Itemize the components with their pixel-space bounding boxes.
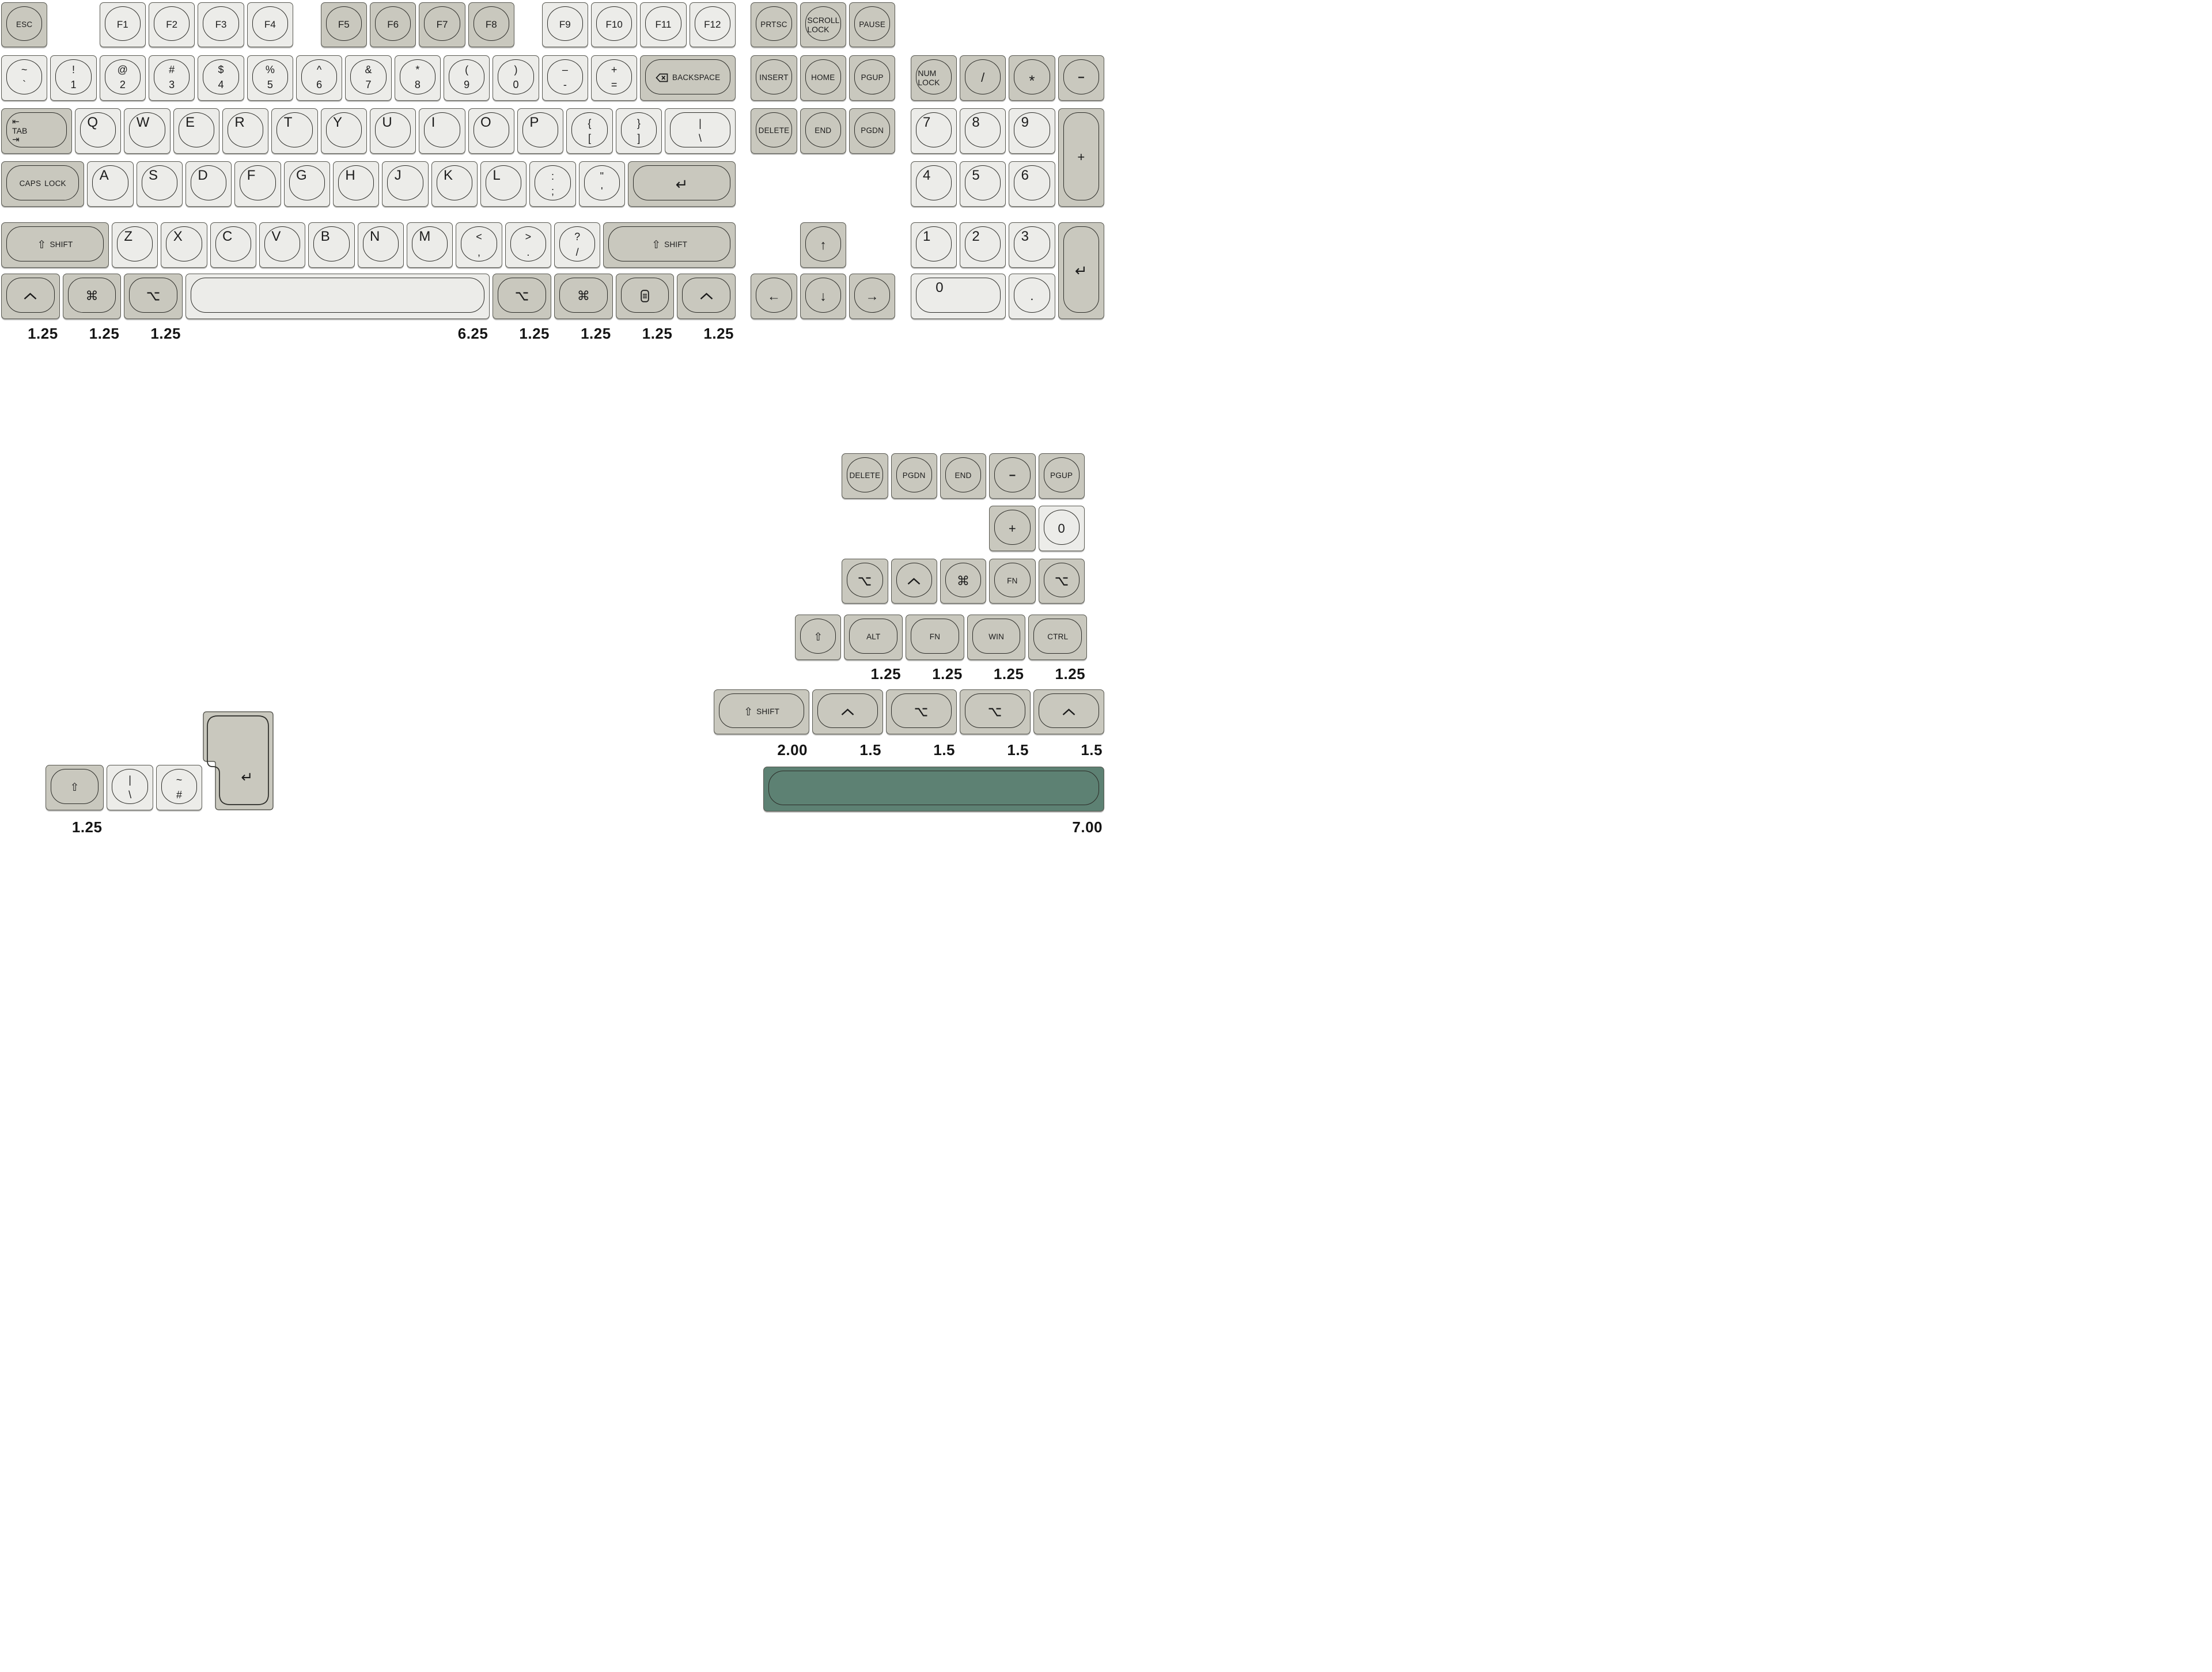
key-np-add[interactable]: + (1058, 108, 1104, 207)
key-legends: + (991, 507, 1033, 549)
key-legend: FN (1007, 577, 1017, 586)
key-f[interactable]: F (234, 161, 281, 207)
key-f7[interactable]: F7 (419, 2, 465, 48)
key-legends: 6 (1021, 168, 1029, 184)
key-end[interactable]: END (800, 108, 846, 154)
key-legends (843, 560, 886, 602)
key-n[interactable]: N (358, 222, 404, 268)
key-slash[interactable]: ?/ (554, 222, 600, 268)
key-s[interactable]: S (137, 161, 183, 207)
key-space[interactable] (185, 274, 490, 319)
key-4[interactable]: $4 (198, 55, 244, 101)
key-pause[interactable]: PAUSE (849, 2, 895, 48)
key-legends: ⇧ (797, 616, 839, 658)
option-icon (146, 291, 160, 302)
key-period[interactable]: >. (505, 222, 551, 268)
key-legend: ~ (21, 62, 28, 77)
key-f8[interactable]: F8 (468, 2, 514, 48)
key-legends: N (370, 229, 380, 245)
key-legends: ⇤TAB⇥ (12, 117, 27, 144)
key-legends: I (431, 115, 435, 131)
key-legend: 9 (464, 77, 469, 92)
key-legend: 9 (1021, 115, 1029, 131)
key-5[interactable]: %5 (247, 55, 293, 101)
key-legend: { (588, 116, 591, 131)
key-legends: J (395, 168, 402, 184)
key-k[interactable]: K (431, 161, 478, 207)
key-legend: ALT (866, 632, 880, 642)
size-label: 1.25 (871, 665, 902, 683)
key-legend: F6 (387, 19, 399, 31)
key-legends: . (1010, 275, 1053, 317)
key-legends: F3 (199, 4, 242, 46)
key-legend: L (493, 168, 500, 184)
size-label: 6.25 (458, 325, 488, 343)
key-6[interactable]: ^6 (296, 55, 342, 101)
key-legend: F1 (117, 19, 128, 31)
key-kit-ctrl-3[interactable] (812, 689, 883, 735)
key-minus[interactable]: –- (542, 55, 588, 101)
key-num-lock[interactable]: NUMLOCK (911, 55, 957, 101)
key-legend: X (173, 229, 183, 245)
key-np-3[interactable]: 3 (1009, 222, 1055, 268)
key-r[interactable]: R (222, 108, 268, 154)
keycap-top (1014, 226, 1050, 261)
key-right-opt[interactable] (493, 274, 551, 319)
keycap-top (437, 165, 472, 200)
key-legend: % (266, 62, 275, 77)
key-e[interactable]: E (173, 108, 219, 154)
key-legend: ( (465, 62, 468, 77)
key-kit-pgup[interactable]: PGUP (1039, 453, 1085, 499)
key-legend: DELETE (849, 471, 880, 481)
key-legend: M (419, 229, 430, 245)
control-icon (840, 708, 855, 716)
key-legends: 1 (923, 229, 930, 245)
key-legend: 1 (70, 77, 76, 92)
key-legends: ⇧SHIFT (715, 691, 808, 733)
key-f4[interactable]: F4 (247, 2, 293, 48)
key-legend: | (128, 772, 131, 787)
key-kit-shift-1u[interactable]: ⇧ (795, 615, 841, 660)
key-kit-win[interactable]: WIN (967, 615, 1026, 660)
key-legends: * (1010, 57, 1053, 99)
key-legends: ⇧SHIFT (605, 224, 734, 266)
key-legends: >. (506, 229, 551, 259)
key-iso-pipe[interactable]: |\ (107, 765, 153, 810)
key-legend: LOCK (44, 179, 66, 189)
key-legends: D (198, 168, 207, 184)
key-legend: 0 (1058, 521, 1065, 536)
key-legend: F4 (264, 19, 276, 31)
key-np-enter[interactable]: ↵ (1058, 222, 1104, 319)
key-kit-cmd[interactable]: ⌘ (940, 559, 986, 604)
key-legends: E (185, 115, 195, 131)
key-np-0[interactable]: 0 (911, 274, 1006, 319)
key-f9[interactable]: F9 (542, 2, 588, 48)
key-legend: 7 (365, 77, 371, 92)
key-arrow-up[interactable]: ↑ (800, 222, 846, 268)
keycap-top (80, 112, 116, 147)
key-legends: C (222, 229, 232, 245)
key-legend: U (382, 115, 392, 131)
key-np-subtract[interactable]: − (1058, 55, 1104, 101)
key-d[interactable]: D (185, 161, 232, 207)
option-icon (914, 707, 928, 718)
key-legend: @ (118, 62, 128, 77)
key-legends: END (942, 455, 984, 497)
key-legend: : (551, 169, 554, 184)
key-legend: G (296, 168, 307, 184)
key-left-shift[interactable]: ⇧SHIFT (1, 222, 109, 268)
key-legend: ? (574, 229, 580, 244)
key-b[interactable]: B (308, 222, 354, 268)
key-scroll-lock[interactable]: SCROLLLOCK (800, 2, 846, 48)
arrow-right-icon: → (866, 290, 879, 303)
key-arrow-right[interactable]: → (849, 274, 895, 319)
key-9[interactable]: (9 (444, 55, 490, 101)
key-left-cmd[interactable]: ⌘ (63, 274, 122, 319)
key-legend: ` (22, 77, 26, 92)
key-legends: → (851, 275, 893, 317)
tab-right-icon: ⇥ (12, 135, 20, 144)
key-legend: F9 (559, 19, 571, 31)
key-kit-plus[interactable]: + (989, 506, 1035, 551)
key-np-dot[interactable]: . (1009, 274, 1055, 319)
key-np-9[interactable]: 9 (1009, 108, 1055, 154)
key-legend: 5 (972, 168, 979, 184)
key-kit-ctrl-2[interactable]: CTRL (1028, 615, 1087, 660)
key-right-shift[interactable]: ⇧SHIFT (603, 222, 736, 268)
key-legends: PGDN (893, 455, 935, 497)
shift-icon: ⇧ (652, 240, 661, 251)
key-legends: F (247, 168, 256, 184)
key-comma[interactable]: <, (456, 222, 502, 268)
key-legend: \ (128, 787, 131, 802)
key-legend: , (478, 245, 480, 260)
control-icon (23, 293, 37, 300)
key-7[interactable]: &7 (345, 55, 391, 101)
key-legend: C (222, 229, 232, 245)
keycap-top (276, 112, 312, 147)
key-legend: * (1029, 72, 1035, 90)
key-legends: WIN (969, 616, 1024, 658)
key-m[interactable]: M (407, 222, 453, 268)
key-legend: . (527, 245, 529, 260)
key-legends: ?/ (555, 229, 600, 259)
key-f5[interactable]: F5 (321, 2, 367, 48)
key-legend: " (600, 169, 604, 184)
key-o[interactable]: O (468, 108, 514, 154)
key-legend: LOCK (918, 78, 940, 87)
key-legends: F5 (323, 4, 365, 46)
key-legends: + (1060, 110, 1103, 205)
key-legends: ⌘ (942, 560, 984, 602)
key-enter[interactable]: ↵ (628, 161, 736, 207)
key-legends: 8 (972, 115, 979, 131)
key-insert[interactable]: INSERT (751, 55, 797, 101)
key-menu[interactable] (616, 274, 675, 319)
size-label: 7.00 (1072, 818, 1103, 836)
keycap-top (916, 226, 952, 261)
key-f6[interactable]: F6 (370, 2, 416, 48)
key-legends: K (444, 168, 453, 184)
key-right-cmd[interactable]: ⌘ (554, 274, 613, 319)
key-kit-ctrl-1[interactable] (891, 559, 937, 604)
keycap-top (166, 226, 202, 261)
key-f12[interactable]: F12 (690, 2, 736, 48)
key-legends (3, 275, 58, 317)
key-legend: E (185, 115, 195, 131)
key-f11[interactable]: F11 (640, 2, 686, 48)
key-t[interactable]: T (271, 108, 317, 154)
key-arrow-left[interactable]: ← (751, 274, 797, 319)
key-legend: − (1009, 469, 1016, 483)
key-home[interactable]: HOME (800, 55, 846, 101)
key-legend: } (637, 116, 641, 131)
key-legends: DELETE (843, 455, 886, 497)
key-iso-enter[interactable]: ↵ (203, 711, 274, 810)
key-kit-opt-3[interactable] (886, 689, 957, 735)
key-legend: F2 (166, 19, 177, 31)
key-legends: PRTSC (752, 4, 795, 46)
key-8[interactable]: *8 (395, 55, 441, 101)
key-spacebar-7u[interactable] (763, 767, 1104, 812)
key-legend: R (234, 115, 244, 131)
key-y[interactable]: Y (321, 108, 367, 154)
key-kit-alt[interactable]: ALT (844, 615, 903, 660)
key-lbracket[interactable]: {[ (566, 108, 612, 154)
key-1[interactable]: !1 (50, 55, 96, 101)
key-legend: > (525, 229, 532, 244)
key-np-4[interactable]: 4 (911, 161, 957, 207)
key-legends: Z (124, 229, 132, 245)
key-0[interactable]: )0 (493, 55, 539, 101)
keycap-top (92, 165, 128, 200)
command-icon: ⌘ (85, 290, 98, 302)
key-prtsc[interactable]: PRTSC (751, 2, 797, 48)
size-label: 1.25 (703, 325, 734, 343)
backspace-icon (656, 73, 669, 82)
keycap-top (1014, 112, 1050, 147)
keycap-top (965, 165, 1001, 200)
key-quote[interactable]: "' (579, 161, 625, 207)
key-legends: "' (579, 169, 624, 199)
key-legend: 3 (1021, 229, 1029, 245)
key-np-7[interactable]: 7 (911, 108, 957, 154)
key-legend: PGUP (861, 73, 884, 83)
key-left-opt[interactable] (124, 274, 183, 319)
key-legend: F5 (338, 19, 350, 31)
size-label: 1.25 (89, 325, 120, 343)
key-kit-0[interactable]: 0 (1039, 506, 1085, 551)
key-legends: G (296, 168, 307, 184)
keyboard-canvas: ESCF1F2F3F4F5F6F7F8F9F10F11F12PRTSCSCROL… (0, 0, 1106, 836)
size-label: 1.5 (1081, 741, 1103, 759)
key-kit-opt-4[interactable] (960, 689, 1031, 735)
key-u[interactable]: U (370, 108, 416, 154)
key-g[interactable]: G (284, 161, 330, 207)
key-right-ctrl[interactable] (677, 274, 736, 319)
key-legends: ⇧ (47, 767, 103, 809)
key-c[interactable]: C (210, 222, 256, 268)
key-kit-delete[interactable]: DELETE (842, 453, 888, 499)
key-legends (1035, 691, 1103, 733)
key-2[interactable]: @2 (100, 55, 146, 101)
key-legends: R (234, 115, 244, 131)
key-legends: END (802, 110, 844, 152)
key-legends (126, 275, 181, 317)
control-icon (1062, 708, 1076, 716)
key-l[interactable]: L (480, 161, 527, 207)
key-h[interactable]: H (333, 161, 379, 207)
key-legend: B (321, 229, 330, 245)
key-esc[interactable]: ESC (1, 2, 47, 48)
key-legend: ) (514, 62, 517, 77)
key-legend: 6 (316, 77, 322, 92)
key-legends: ↵ (630, 163, 734, 205)
key-legends: W (137, 115, 150, 131)
control-icon (699, 293, 714, 300)
key-legends: }] (616, 116, 661, 146)
key-iso-hash[interactable]: ~# (156, 765, 202, 810)
key-f1[interactable]: F1 (100, 2, 146, 48)
key-kit-fn-2[interactable]: FN (906, 615, 964, 660)
keycap-top (363, 226, 399, 261)
key-legend: # (176, 787, 182, 802)
key-legends: ↵ (1060, 224, 1103, 317)
key-legends: <, (456, 229, 501, 259)
key-f3[interactable]: F3 (198, 2, 244, 48)
key-legend: 2 (120, 77, 126, 92)
option-icon (988, 707, 1002, 718)
key-np-5[interactable]: 5 (960, 161, 1006, 207)
key-p[interactable]: P (517, 108, 563, 154)
key-delete[interactable]: DELETE (751, 108, 797, 154)
key-kit-opt-2[interactable] (1039, 559, 1085, 604)
option-icon (858, 576, 872, 587)
key-rbracket[interactable]: }] (616, 108, 662, 154)
keycap-top (375, 112, 411, 147)
key-legend: P (529, 115, 539, 131)
keycap-top (240, 165, 275, 200)
key-legend: F7 (437, 19, 448, 31)
size-label: 2.00 (777, 741, 808, 759)
key-legend: Z (124, 229, 132, 245)
key-legends: − (1060, 57, 1103, 99)
key-legend: $ (218, 62, 224, 77)
key-legends: :; (530, 169, 575, 199)
key-np-divide[interactable]: / (960, 55, 1006, 101)
key-v[interactable]: V (259, 222, 305, 268)
key-kit-end[interactable]: END (940, 453, 986, 499)
shift-icon: ⇧ (744, 707, 753, 718)
key-caps-lock[interactable]: CAPSLOCK (1, 161, 84, 207)
tab-left-icon: ⇤ (12, 117, 20, 126)
arrow-up-icon: ↑ (820, 238, 827, 252)
key-legends: ~` (2, 62, 47, 92)
key-legend: DELETE (759, 126, 790, 136)
keycap-top (191, 278, 484, 313)
keycap-top (313, 226, 349, 261)
keycap-top (474, 112, 509, 147)
key-semicolon[interactable]: :; (529, 161, 575, 207)
key-legend: = (611, 77, 618, 92)
key-legend: F12 (704, 19, 721, 31)
key-kit-ctrl-4[interactable] (1033, 689, 1104, 735)
key-legend: END (815, 126, 831, 136)
key-pgdn[interactable]: PGDN (849, 108, 895, 154)
key-legends: )0 (493, 62, 538, 92)
key-legends: FN (991, 560, 1033, 602)
key-legend: W (137, 115, 150, 131)
command-icon: ⌘ (957, 575, 969, 587)
key-np-multiply[interactable]: * (1009, 55, 1055, 101)
key-kit-opt-1[interactable] (842, 559, 888, 604)
key-backslash[interactable]: |\ (665, 108, 736, 154)
key-np-8[interactable]: 8 (960, 108, 1006, 154)
key-legend: 2 (972, 229, 979, 245)
keycap-top (142, 165, 177, 200)
key-a[interactable]: A (87, 161, 133, 207)
key-kit-pgdn[interactable]: PGDN (891, 453, 937, 499)
key-np-6[interactable]: 6 (1009, 161, 1055, 207)
key-kit-minus[interactable]: − (989, 453, 1035, 499)
key-legends (893, 560, 935, 602)
keycap-top (179, 112, 214, 147)
key-f10[interactable]: F10 (591, 2, 637, 48)
key-legend: F3 (215, 19, 227, 31)
key-legends (494, 275, 550, 317)
key-kit-fn-1[interactable]: FN (989, 559, 1035, 604)
key-legend: 8 (415, 77, 421, 92)
key-equals[interactable]: += (591, 55, 637, 101)
key-grave[interactable]: ~` (1, 55, 47, 101)
key-legend: ESC (16, 20, 32, 30)
key-kit-shift-2u[interactable]: ⇧SHIFT (714, 689, 809, 735)
key-i[interactable]: I (419, 108, 465, 154)
key-q[interactable]: Q (75, 108, 121, 154)
key-legend: F8 (486, 19, 497, 31)
key-legends: ↑ (802, 224, 844, 266)
key-tab[interactable]: ⇤TAB⇥ (1, 108, 72, 154)
key-legends: Q (87, 115, 98, 131)
key-iso-shift[interactable]: ⇧ (46, 765, 104, 810)
key-x[interactable]: X (161, 222, 207, 268)
keycap-top (228, 112, 263, 147)
key-z[interactable]: Z (112, 222, 158, 268)
key-3[interactable]: #3 (149, 55, 195, 101)
key-np-1[interactable]: 1 (911, 222, 957, 268)
key-arrow-down[interactable]: ↓ (800, 274, 846, 319)
key-backspace[interactable]: BACKSPACE (640, 55, 736, 101)
key-f2[interactable]: F2 (149, 2, 195, 48)
key-np-2[interactable]: 2 (960, 222, 1006, 268)
key-legends: |\ (665, 116, 735, 146)
key-w[interactable]: W (124, 108, 170, 154)
key-left-ctrl[interactable] (1, 274, 60, 319)
key-legends: !1 (51, 62, 96, 92)
key-pgup[interactable]: PGUP (849, 55, 895, 101)
key-legend: & (365, 62, 372, 77)
key-legends: / (961, 57, 1004, 99)
key-j[interactable]: J (382, 161, 428, 207)
key-legend: CAPS (20, 179, 41, 189)
key-legends: F9 (544, 4, 586, 46)
key-legend: SCROLL (807, 16, 839, 25)
key-legend: 0 (935, 280, 943, 296)
keycap-top (768, 771, 1099, 806)
